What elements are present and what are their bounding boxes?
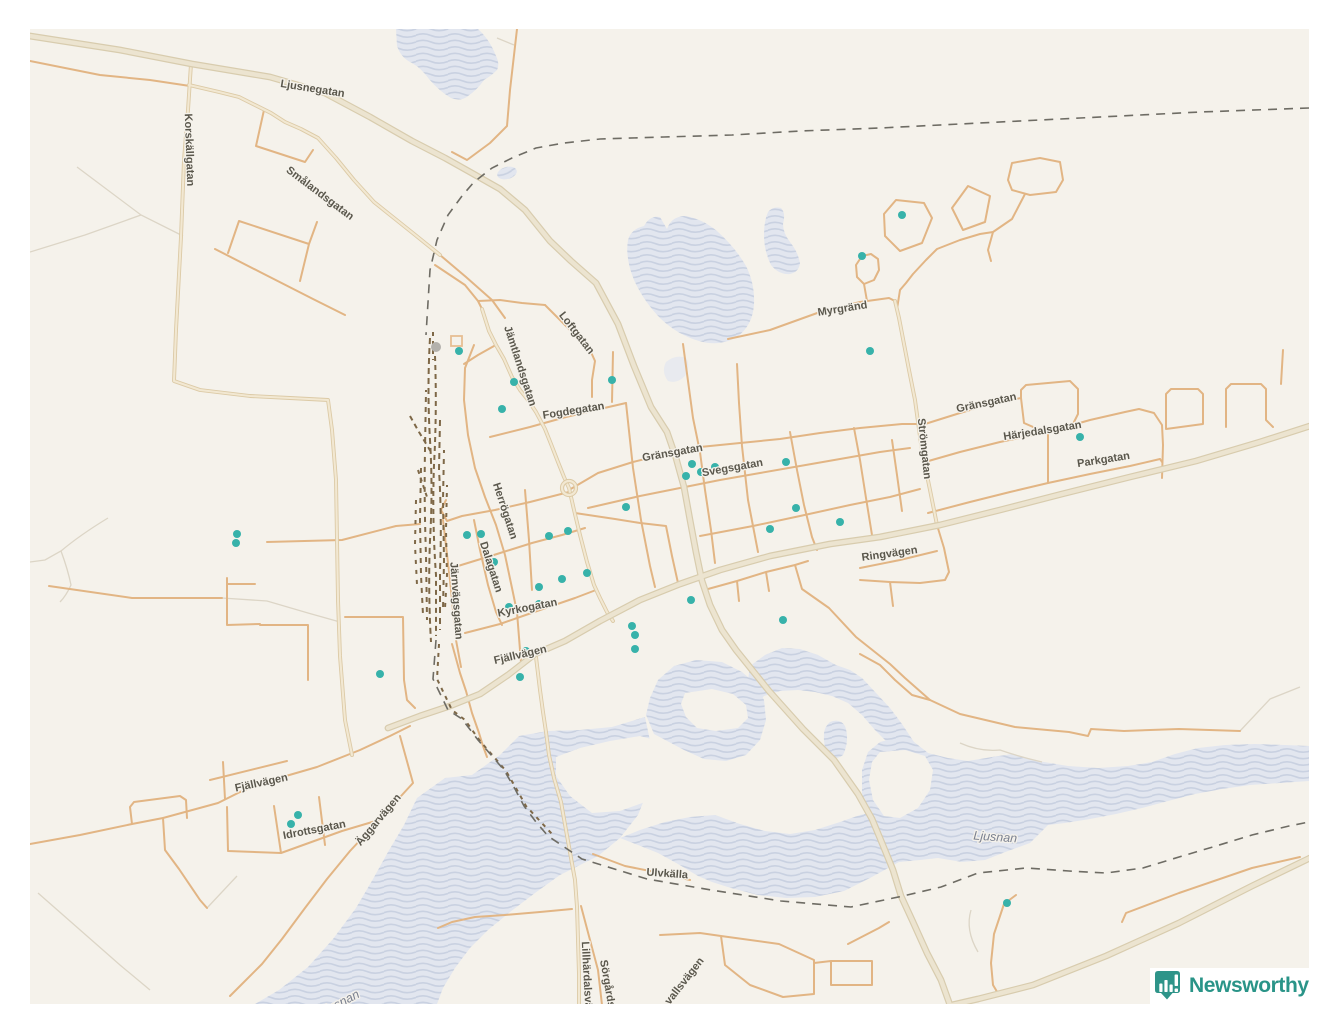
svg-text:Newsworthy: Newsworthy xyxy=(1189,974,1309,997)
svg-text:Korskällgatan: Korskällgatan xyxy=(182,113,197,186)
